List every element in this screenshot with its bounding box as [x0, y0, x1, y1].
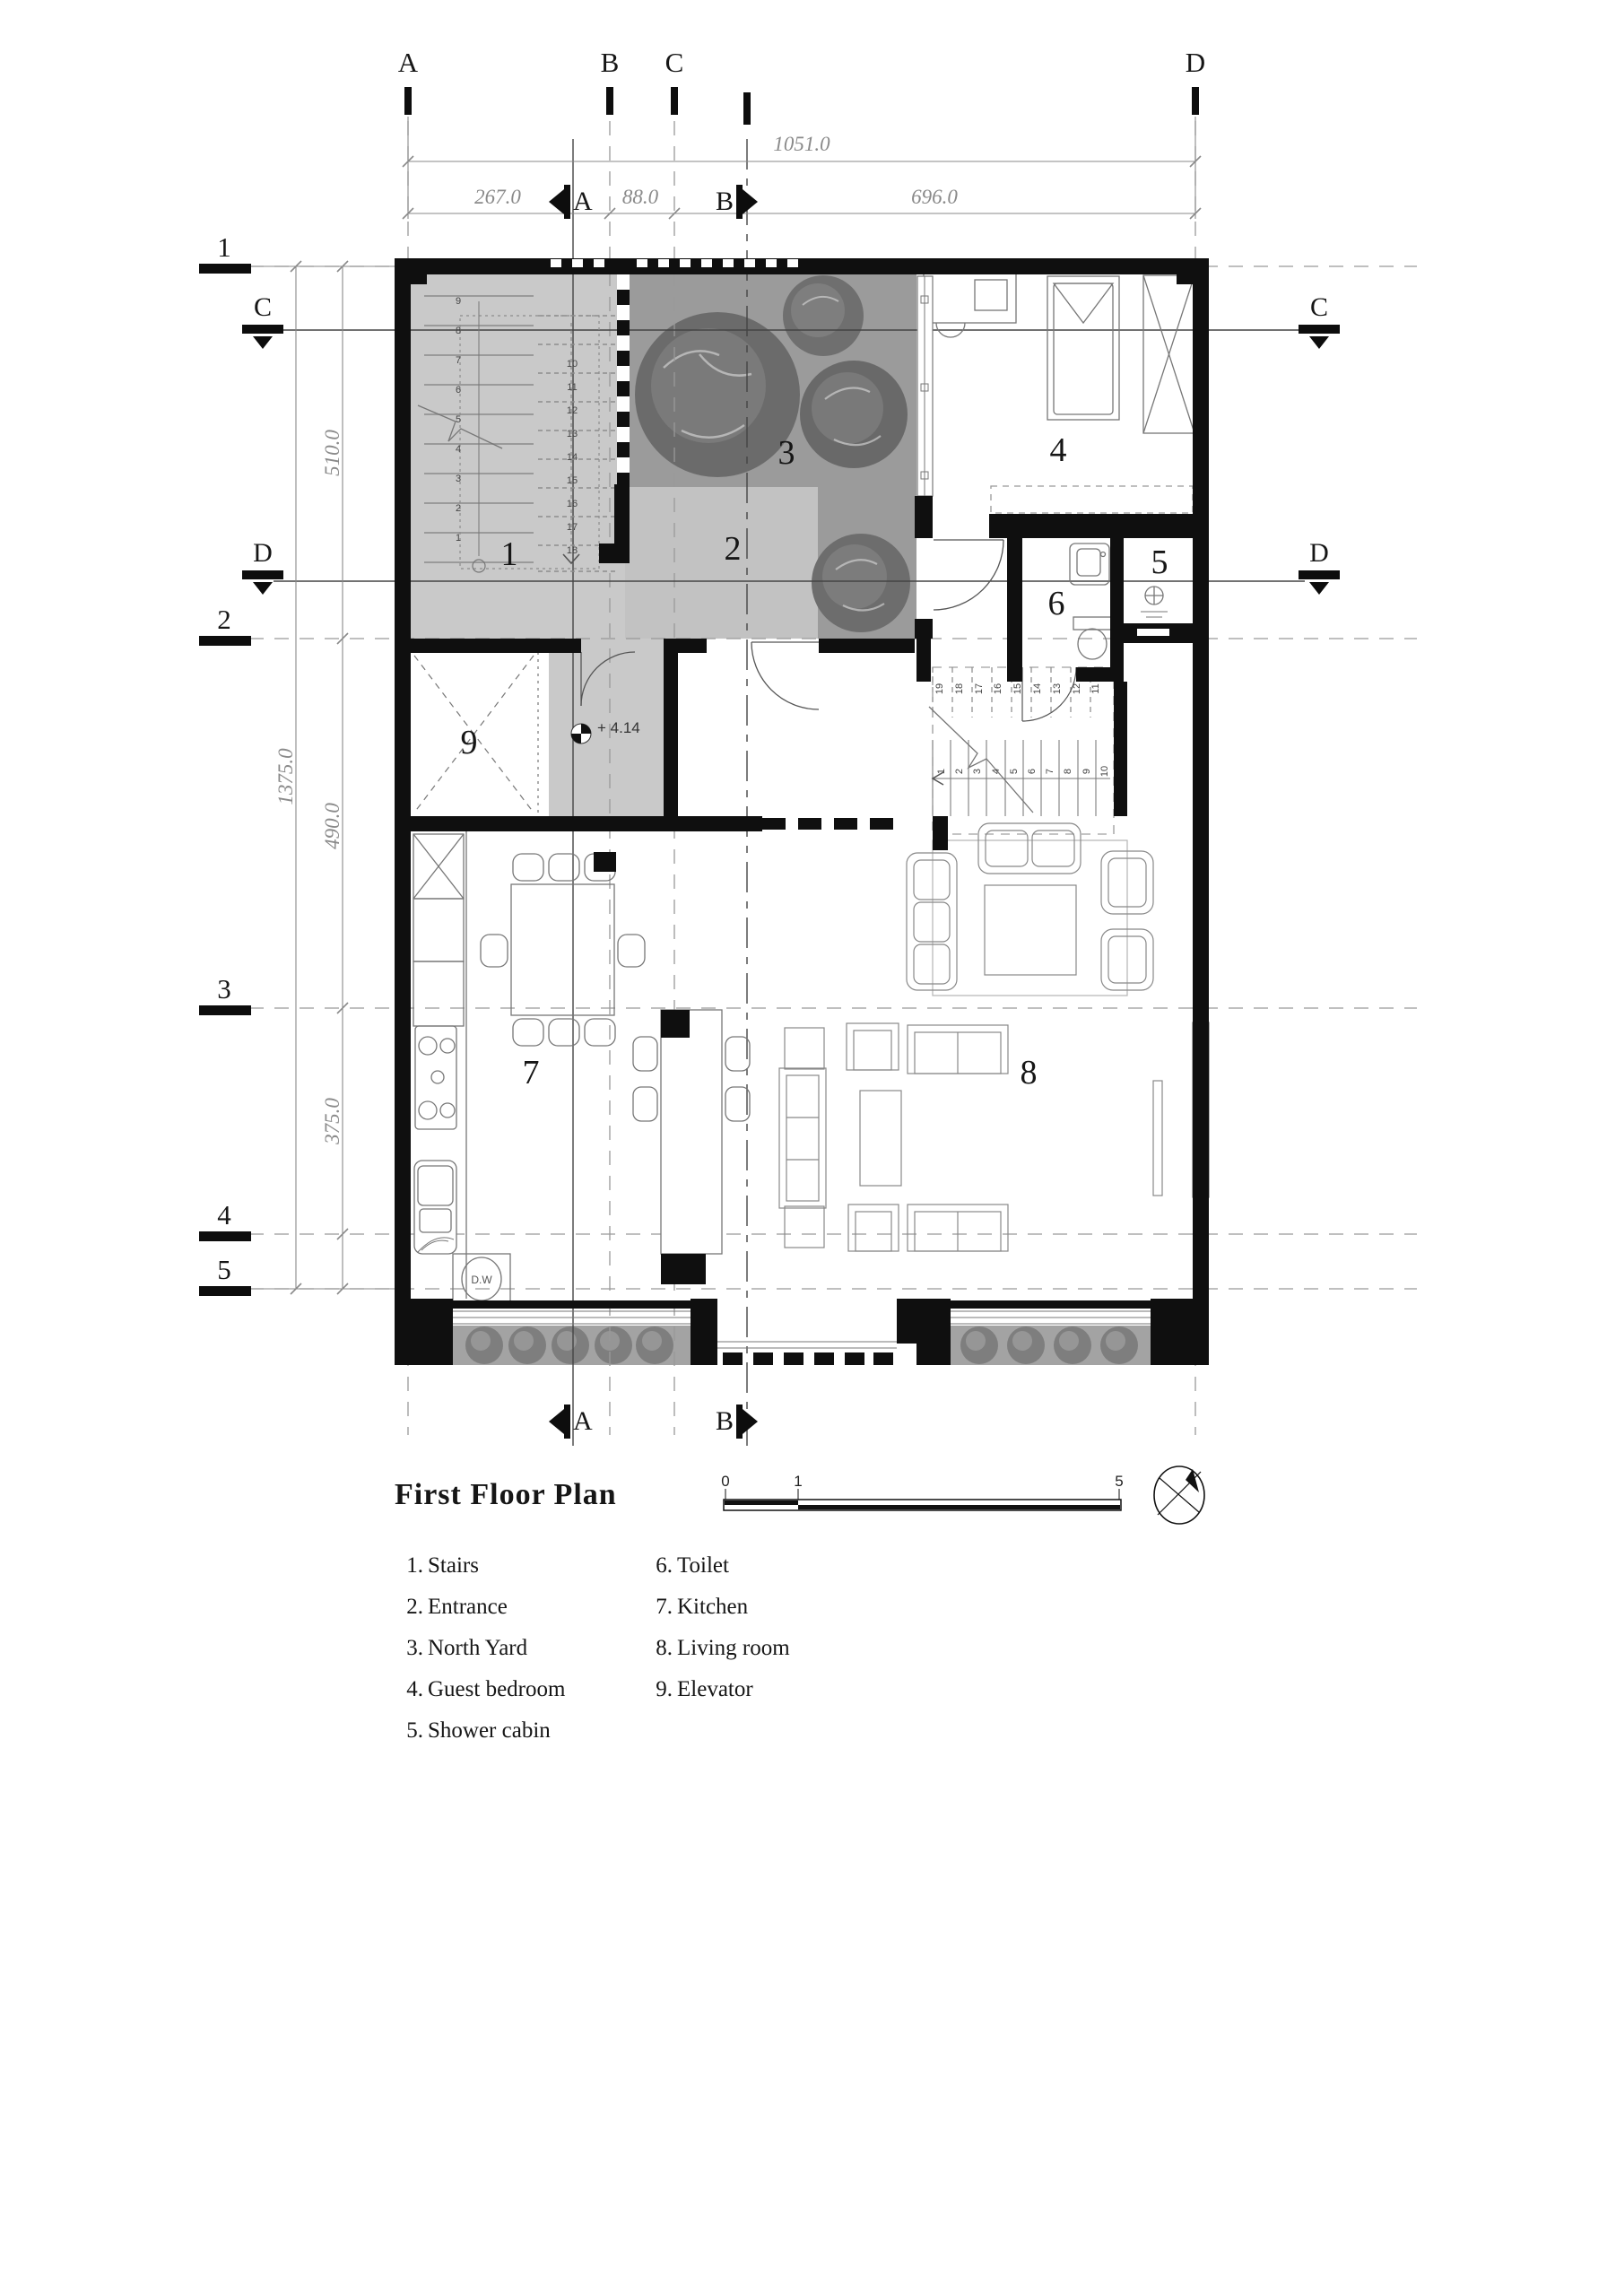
section-b-letter: B	[716, 1406, 734, 1437]
section-marker-d-left: D	[242, 538, 283, 595]
living-set-2	[779, 1023, 1162, 1251]
stair-tread-number: 3	[456, 474, 461, 484]
stair-tread-number: 9	[1081, 769, 1092, 774]
stair-tread-number: 17	[567, 522, 578, 533]
stair-tread-number: 14	[567, 452, 578, 463]
dim-left-seg-1: 510.0	[321, 430, 344, 476]
dim-left-seg-2: 490.0	[321, 803, 344, 849]
dim-top-seg-2: 88.0	[622, 186, 658, 209]
legend-item: 4.Guest bedroom	[393, 1677, 565, 1718]
dim-left-seg-3: 375.0	[321, 1098, 344, 1144]
grid-tick-b	[606, 87, 613, 115]
section-marker-b-top: B	[716, 185, 758, 219]
stair-tread-number: 7	[1045, 769, 1055, 774]
level-marker-icon	[571, 724, 591, 744]
room-label-shower-cabin: 5	[1151, 543, 1168, 582]
section-marker-a-bottom: A	[549, 1405, 593, 1439]
stair-tread-number: 18	[567, 545, 578, 556]
section-a-letter: A	[573, 1406, 593, 1437]
stair-tread-number: 9	[456, 296, 461, 307]
stair-tread-number: 11	[567, 382, 577, 393]
scalebar-label-0: 0	[721, 1473, 729, 1491]
room-label-elevator: 9	[461, 723, 478, 762]
stair-tread-number: 7	[456, 355, 461, 366]
section-a-letter: A	[573, 187, 593, 217]
bar-island	[633, 1010, 750, 1254]
stair-tread-number: 16	[993, 683, 1003, 694]
legend-item: 2.Entrance	[393, 1595, 565, 1636]
section-marker-c-right: C	[1299, 292, 1340, 349]
room-label-north-yard: 3	[778, 433, 795, 473]
legend-column-2: 6.Toilet7.Kitchen8.Living room9.Elevator	[642, 1553, 790, 1718]
stair-tread-number: 14	[1032, 683, 1043, 694]
section-marker-b-bottom: B	[716, 1405, 758, 1439]
stair-tread-number: 4	[456, 444, 461, 455]
room-label-guest-bedroom: 4	[1050, 430, 1067, 470]
scale-bar	[724, 1489, 1121, 1510]
stair-tread-number: 5	[1009, 769, 1020, 774]
drawing-title: First Floor Plan	[395, 1478, 617, 1512]
stair-tread-number: 12	[567, 405, 578, 416]
room-label-kitchen: 7	[523, 1053, 540, 1092]
bedroom-furniture	[924, 274, 1194, 433]
stair-tread-number: 15	[567, 475, 578, 486]
section-a-bar	[564, 185, 570, 219]
stair-tread-number: 1	[936, 769, 947, 774]
stair-tread-number: 13	[1052, 683, 1063, 694]
dishwasher-label: D.W	[471, 1274, 491, 1286]
section-marker-d-right: D	[1299, 538, 1340, 595]
stair-tread-number: 19	[934, 683, 945, 694]
stair-tread-number: 8	[456, 326, 461, 336]
stair-tread-number: 5	[456, 414, 461, 425]
grid-tick-d	[1192, 87, 1199, 115]
grid-tick-a	[404, 87, 412, 115]
stair-tread-number: 3	[972, 769, 983, 774]
section-b-arrow-icon	[743, 189, 758, 214]
grid-tick-c	[671, 87, 678, 115]
dining-set	[481, 854, 645, 1046]
floor-plan-page: A B C D 1051.0 267.0 88.0 696.0 A B A B …	[0, 0, 1607, 2296]
dim-top-total: 1051.0	[773, 133, 830, 156]
legend-item: 1.Stairs	[393, 1553, 565, 1595]
section-marker-a-top: A	[549, 185, 593, 219]
floor-plan-drawing	[0, 0, 1607, 2296]
room-label-entrance: 2	[725, 529, 742, 569]
level-marker-value: + 4.14	[597, 719, 640, 737]
scalebar-label-5: 5	[1115, 1473, 1123, 1491]
stair-tread-number: 13	[567, 429, 578, 439]
section-a-arrow-icon	[549, 189, 564, 214]
dim-top-seg-1: 267.0	[474, 186, 521, 209]
legend-item: 9.Elevator	[642, 1677, 790, 1718]
section-b-tick	[743, 92, 751, 125]
section-b-bar	[736, 185, 743, 219]
dim-top-seg-3: 696.0	[911, 186, 958, 209]
stair-tread-number: 2	[456, 503, 461, 514]
legend-column-1: 1.Stairs2.Entrance3.North Yard4.Guest be…	[393, 1553, 565, 1760]
grid-col-label-c: C	[665, 47, 684, 79]
kitchen-fixtures	[413, 831, 510, 1304]
stair-tread-number: 4	[991, 769, 1002, 774]
stair-tread-number: 18	[954, 683, 965, 694]
stair-tread-number: 6	[456, 385, 461, 396]
north-arrow-icon	[1154, 1466, 1204, 1524]
legend-item: 3.North Yard	[393, 1636, 565, 1677]
room-label-toilet: 6	[1048, 584, 1065, 623]
stair-tread-number: 10	[567, 359, 578, 370]
stair-tread-number: 16	[567, 499, 578, 509]
stair-tread-number: 17	[974, 683, 985, 694]
legend-item: 8.Living room	[642, 1636, 790, 1677]
legend-item: 6.Toilet	[642, 1553, 790, 1595]
stair-tread-number: 10	[1099, 766, 1110, 777]
room-label-living-room: 8	[1021, 1053, 1038, 1092]
scalebar-label-1: 1	[794, 1473, 802, 1491]
stair-tread-number: 6	[1027, 769, 1038, 774]
legend-item: 5.Shower cabin	[393, 1718, 565, 1760]
stair-tread-number: 8	[1063, 769, 1073, 774]
section-b-letter: B	[716, 187, 734, 217]
stair-tread-number: 15	[1012, 683, 1023, 694]
stair-tread-number: 1	[456, 533, 461, 544]
stair-tread-number: 2	[954, 769, 965, 774]
section-marker-c-left: C	[242, 292, 283, 349]
room-label-stairs: 1	[501, 535, 518, 574]
legend-item: 7.Kitchen	[642, 1595, 790, 1636]
stair-tread-number: 11	[1090, 683, 1101, 693]
grid-col-label-d: D	[1186, 47, 1205, 79]
grid-col-label-b: B	[601, 47, 620, 79]
stair-tread-number: 12	[1072, 683, 1082, 694]
dim-left-total: 1375.0	[274, 748, 298, 804]
grid-col-label-a: A	[398, 47, 418, 79]
